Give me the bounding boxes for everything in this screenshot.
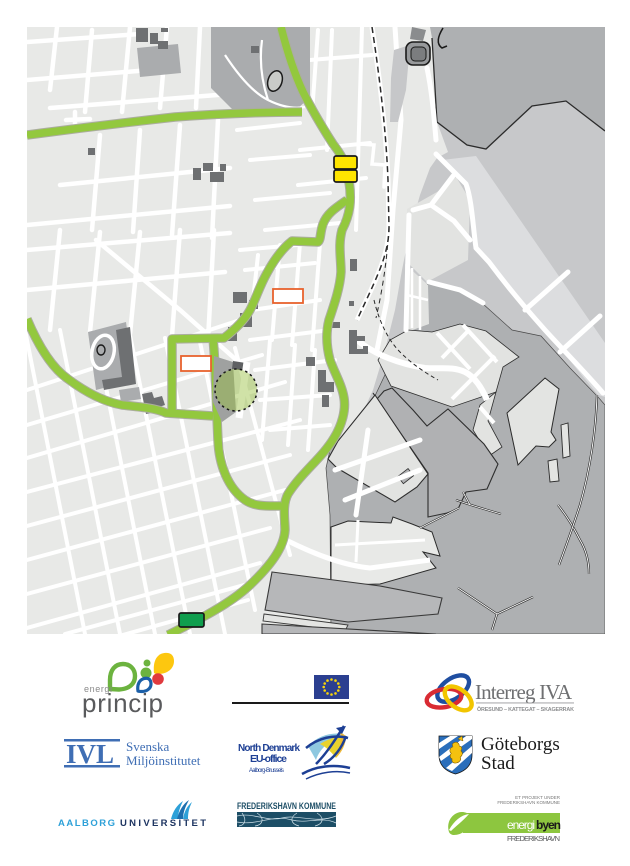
svg-text:UNIVERSITET: UNIVERSITET: [120, 818, 206, 829]
svg-text:Svenska: Svenska: [126, 739, 170, 754]
svg-text:EU-office: EU-office: [250, 753, 287, 765]
svg-text:energi: energi: [507, 818, 535, 832]
svg-text:byen: byen: [536, 818, 561, 832]
svg-text:AALBORG: AALBORG: [58, 818, 115, 829]
svg-text:princip: princip: [82, 688, 163, 718]
svg-text:Miljöinstitutet: Miljöinstitutet: [126, 753, 201, 768]
svg-text:IVL: IVL: [66, 739, 114, 769]
svg-text:Stad: Stad: [481, 753, 515, 774]
svg-text:Interreg IVA: Interreg IVA: [475, 680, 573, 704]
svg-text:FREDERIKSHAVN KOMMUNE: FREDERIKSHAVN KOMMUNE: [237, 801, 336, 812]
svg-text:FREDERIKSHAVN: FREDERIKSHAVN: [507, 834, 560, 843]
svg-text:Göteborgs: Göteborgs: [481, 734, 560, 755]
svg-text:Aalborg-Brussels: Aalborg-Brussels: [249, 768, 284, 774]
svg-text:ÖRESUND – KATTEGAT – SKAGERRAK: ÖRESUND – KATTEGAT – SKAGERRAK: [477, 706, 574, 713]
